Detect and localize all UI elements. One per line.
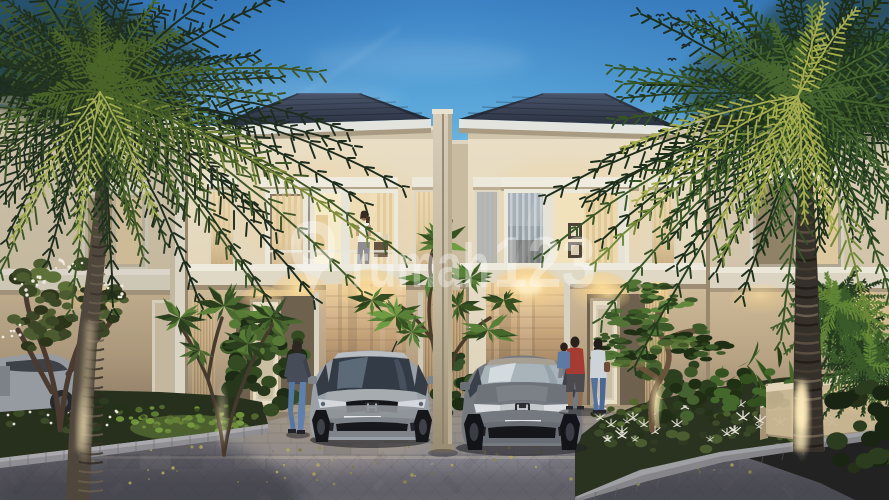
svg-text:rumah: rumah xyxy=(351,232,490,301)
svg-text:123: 123 xyxy=(493,223,596,303)
